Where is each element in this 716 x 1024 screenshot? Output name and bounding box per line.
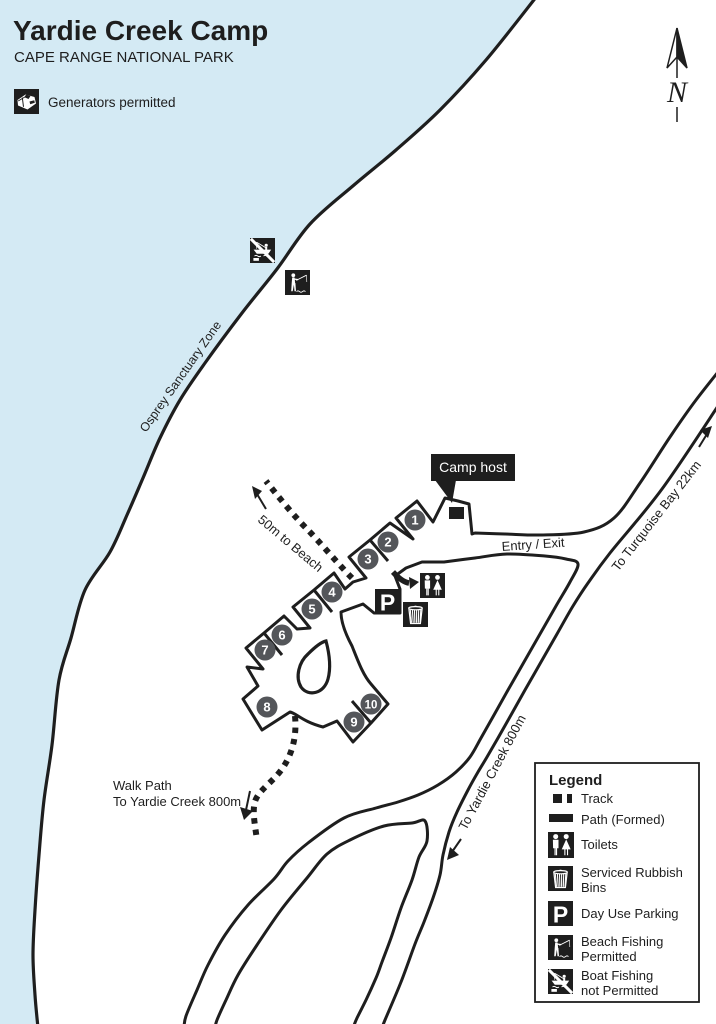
svg-text:Path (Formed): Path (Formed) bbox=[581, 812, 665, 827]
svg-text:Yardie Creek Camp: Yardie Creek Camp bbox=[13, 15, 268, 46]
svg-text:2: 2 bbox=[384, 535, 391, 550]
svg-text:Track: Track bbox=[581, 791, 614, 806]
svg-text:4: 4 bbox=[328, 585, 336, 600]
svg-text:Permitted: Permitted bbox=[581, 949, 637, 964]
svg-text:Beach Fishing: Beach Fishing bbox=[581, 934, 663, 949]
svg-text:P: P bbox=[553, 902, 568, 928]
svg-text:Serviced Rubbish: Serviced Rubbish bbox=[581, 865, 683, 880]
svg-text:To Yardie Creek 800m: To Yardie Creek 800m bbox=[113, 794, 241, 809]
svg-text:N: N bbox=[666, 76, 689, 109]
svg-text:5: 5 bbox=[308, 602, 315, 617]
svg-text:Camp host: Camp host bbox=[439, 459, 507, 475]
svg-text:Generators permitted: Generators permitted bbox=[48, 95, 176, 110]
svg-text:6: 6 bbox=[278, 628, 285, 643]
svg-text:1: 1 bbox=[411, 513, 418, 528]
svg-text:10: 10 bbox=[365, 700, 378, 712]
svg-text:8: 8 bbox=[263, 700, 270, 715]
svg-text:Bins: Bins bbox=[581, 880, 607, 895]
svg-text:Boat Fishing: Boat Fishing bbox=[581, 968, 653, 983]
svg-text:CAPE RANGE NATIONAL PARK: CAPE RANGE NATIONAL PARK bbox=[14, 49, 234, 66]
svg-text:not Permitted: not Permitted bbox=[581, 983, 658, 998]
svg-text:Walk Path: Walk Path bbox=[113, 778, 172, 793]
svg-text:Toilets: Toilets bbox=[581, 837, 618, 852]
svg-text:Legend: Legend bbox=[549, 772, 602, 789]
svg-text:3: 3 bbox=[364, 552, 371, 567]
svg-text:P: P bbox=[380, 590, 395, 616]
svg-text:9: 9 bbox=[350, 715, 357, 730]
svg-text:7: 7 bbox=[261, 643, 268, 658]
svg-text:Day Use Parking: Day Use Parking bbox=[581, 906, 679, 921]
